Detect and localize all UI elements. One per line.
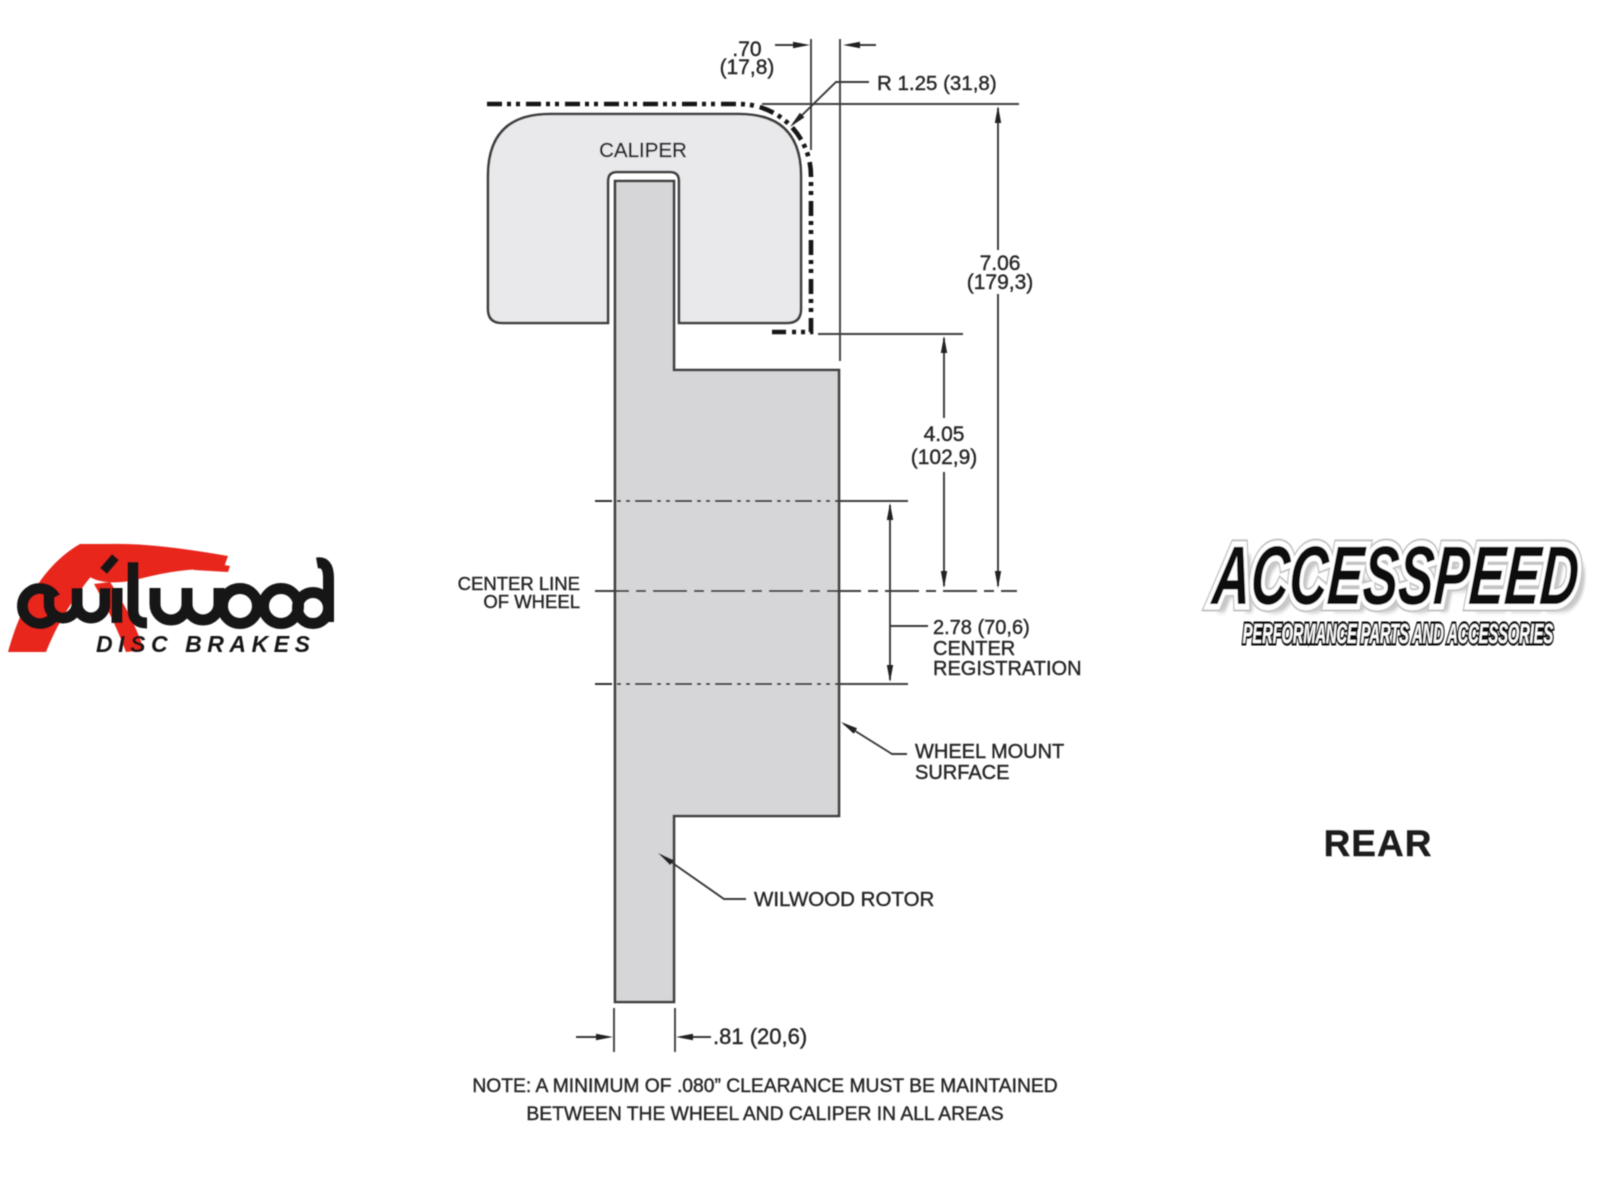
svg-text:NOTE: A MINIMUM OF .080” CLEAR: NOTE: A MINIMUM OF .080” CLEARANCE MUST … (472, 1076, 1057, 1097)
svg-text:ACCESSPEED: ACCESSPEED (1208, 529, 1582, 622)
svg-text:REGISTRATION: REGISTRATION (933, 658, 1082, 680)
svg-text:4.05: 4.05 (924, 423, 965, 446)
svg-text:(17,8): (17,8) (720, 56, 775, 79)
svg-text:(179,3): (179,3) (967, 271, 1034, 294)
svg-text:WHEEL MOUNT: WHEEL MOUNT (915, 741, 1064, 763)
svg-text:.81 (20,6): .81 (20,6) (713, 1024, 807, 1049)
svg-text:CENTER: CENTER (933, 638, 1015, 660)
svg-text:OF WHEEL: OF WHEEL (483, 591, 580, 612)
svg-text:(102,9): (102,9) (911, 446, 978, 469)
svg-text:PERFORMANCE PARTS AND ACCESSOR: PERFORMANCE PARTS AND ACCESSORIES (1243, 618, 1553, 649)
svg-text:REAR: REAR (1324, 823, 1433, 864)
svg-text:R 1.25 (31,8): R 1.25 (31,8) (877, 72, 997, 95)
svg-text:SURFACE: SURFACE (915, 762, 1009, 784)
svg-text:WILWOOD ROTOR: WILWOOD ROTOR (754, 888, 934, 911)
svg-text:BETWEEN THE WHEEL AND CALIPER: BETWEEN THE WHEEL AND CALIPER IN ALL ARE… (526, 1104, 1003, 1125)
svg-text:2.78 (70,6): 2.78 (70,6) (933, 617, 1030, 639)
svg-text:CALIPER: CALIPER (599, 139, 687, 162)
